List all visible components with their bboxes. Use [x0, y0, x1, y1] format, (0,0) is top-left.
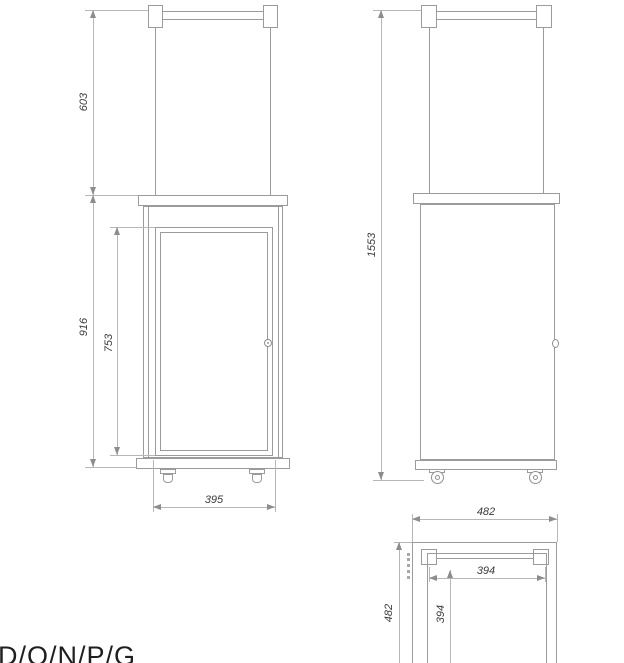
dim-394w-label: 394 — [466, 564, 506, 578]
dim-482w-label: 482 — [466, 505, 506, 519]
dim-916-ext-bottom — [85, 467, 136, 468]
front-body-inner-left-edge — [148, 206, 149, 458]
dim-1553-line — [381, 10, 382, 480]
side-top-bar-left-cap — [421, 5, 437, 28]
front-left-foot-stem — [163, 474, 173, 483]
dim-603-label: 603 — [77, 82, 91, 122]
dim-753-line — [117, 227, 118, 455]
product-code-partial: D/O/N/P/G — [0, 641, 136, 663]
side-right-rod — [543, 28, 544, 193]
dim-395-label: 395 — [194, 493, 234, 507]
dim-753-label: 753 — [102, 323, 116, 363]
dim-482w-line — [412, 519, 557, 520]
front-right-rod — [270, 28, 271, 195]
front-top-bar-right-cap — [263, 5, 278, 28]
front-door-inner-frame — [160, 232, 268, 451]
dim-916-line — [93, 195, 94, 467]
side-top-bar — [437, 11, 536, 20]
dim-395-ext-right — [275, 460, 276, 512]
dim-394d-label: 394 — [434, 594, 448, 634]
dim-603-line — [93, 10, 94, 195]
dim-1553-ext-bottom — [373, 480, 424, 481]
front-door-lock-pin — [267, 342, 269, 344]
dim-395-line — [153, 507, 275, 508]
front-right-foot-stem — [252, 474, 262, 483]
dim-482w-ext-right — [557, 514, 558, 542]
dim-482d-line — [399, 542, 400, 663]
drawing-canvas: 603 916 753 395 — [0, 0, 624, 663]
dim-394d-line — [450, 570, 451, 663]
front-bottom-plate — [136, 458, 290, 469]
side-left-caster-hub — [435, 475, 440, 480]
side-lock-knob — [552, 339, 559, 348]
front-top-bar-left-cap — [148, 5, 163, 28]
side-body — [420, 204, 555, 460]
dim-1553-label: 1553 — [365, 225, 379, 265]
front-left-rod — [155, 28, 156, 195]
side-top-bar-right-cap — [536, 5, 552, 28]
micro-annotation — [407, 553, 413, 579]
side-left-rod — [429, 28, 430, 193]
dim-482d-label: 482 — [382, 593, 396, 633]
front-top-plate — [138, 195, 288, 206]
dim-916-label: 916 — [77, 307, 91, 347]
front-body-inner-right-edge — [278, 206, 279, 458]
dim-394w-ext-right — [545, 567, 546, 582]
dim-394w-line — [429, 578, 545, 579]
dim-753-ext-bottom — [110, 455, 155, 456]
side-top-plate — [413, 193, 560, 204]
side-right-caster-hub — [533, 475, 538, 480]
front-top-bar — [163, 11, 263, 20]
